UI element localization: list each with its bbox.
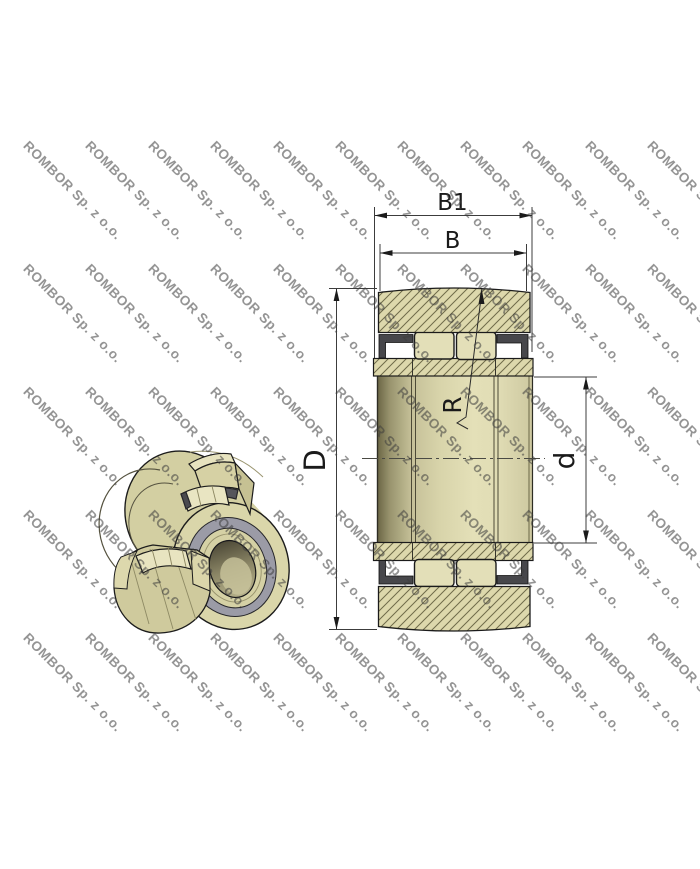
- outer-ring-section-bottom: [379, 587, 531, 632]
- outer-ring-section-top: [379, 288, 531, 333]
- cross-section-view: [362, 288, 545, 631]
- arrow-D-top: [334, 289, 340, 302]
- arrow-D-bottom: [334, 617, 340, 630]
- arrow-d-bottom: [583, 531, 589, 544]
- arrow-b1-right: [520, 213, 533, 219]
- iso-cutaway-view: [99, 436, 305, 645]
- side-plate-top-left: [379, 335, 413, 359]
- arrow-b1-left: [375, 213, 388, 219]
- roller-bottom-right: [457, 560, 497, 587]
- label-d: d: [548, 452, 581, 470]
- label-B1: B1: [437, 190, 467, 216]
- bearing-drawing-page: B1 B D d R ROMBOR Sp. z o.o.ROMBOR Sp. z…: [0, 0, 700, 869]
- iso-bottom-cut-block: [114, 545, 210, 633]
- technical-drawing: B1 B D d R: [0, 0, 700, 869]
- arrow-b-right: [514, 250, 527, 256]
- inner-ring-section-top: [374, 359, 534, 377]
- label-D: D: [298, 449, 332, 471]
- label-B: B: [445, 228, 461, 254]
- roller-top-left: [415, 332, 455, 359]
- side-plate-top-right: [497, 335, 528, 359]
- label-R: R: [438, 396, 467, 413]
- arrow-b-left: [380, 250, 393, 256]
- arrow-d-top: [583, 377, 589, 390]
- inner-ring-section-bottom: [374, 543, 534, 561]
- side-plate-bottom-right: [497, 561, 528, 585]
- side-plate-bottom-left: [379, 561, 413, 585]
- roller-bottom-left: [415, 560, 455, 587]
